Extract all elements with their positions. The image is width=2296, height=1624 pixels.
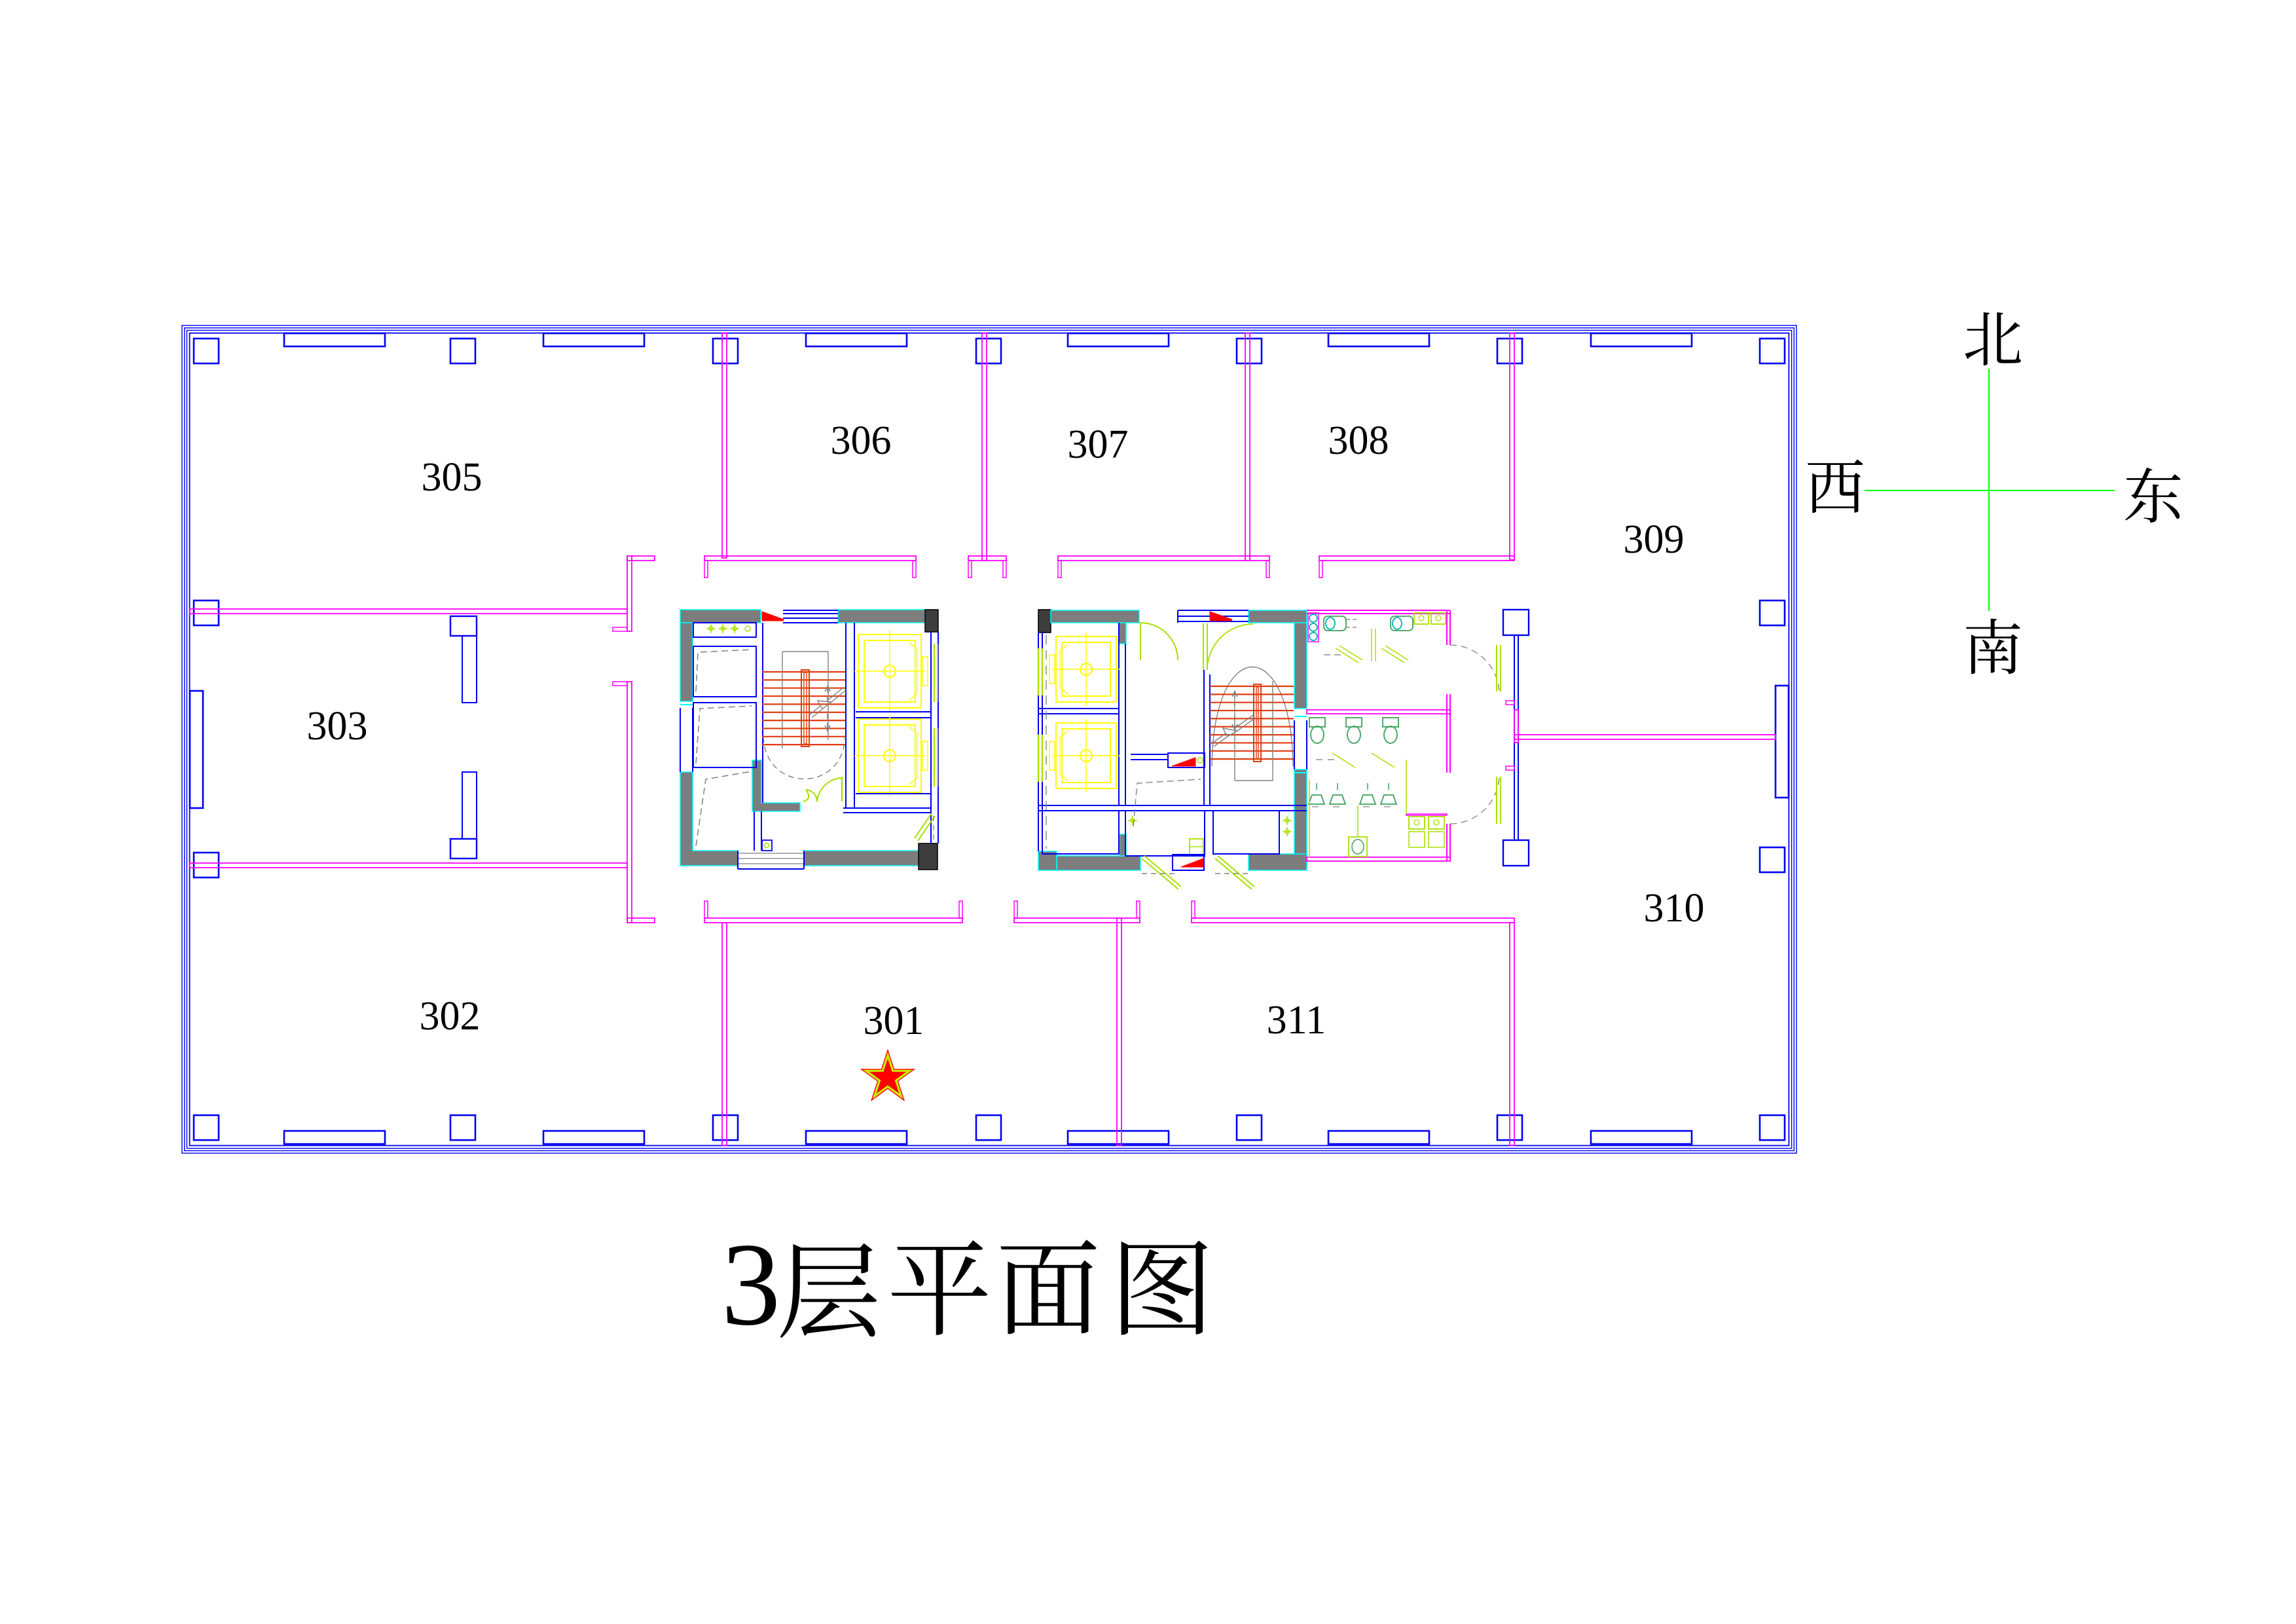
svg-text:3: 3 xyxy=(721,1219,781,1350)
svg-text:306: 306 xyxy=(831,418,892,463)
svg-text:305: 305 xyxy=(422,455,483,500)
svg-text:307: 307 xyxy=(1068,422,1129,467)
svg-text:301: 301 xyxy=(864,999,924,1043)
svg-text:311: 311 xyxy=(1267,998,1326,1043)
svg-text:310: 310 xyxy=(1644,886,1705,931)
svg-text:303: 303 xyxy=(307,704,368,748)
svg-text:302: 302 xyxy=(420,994,481,1039)
svg-text:309: 309 xyxy=(1624,517,1685,562)
svg-text:308: 308 xyxy=(1328,418,1389,463)
